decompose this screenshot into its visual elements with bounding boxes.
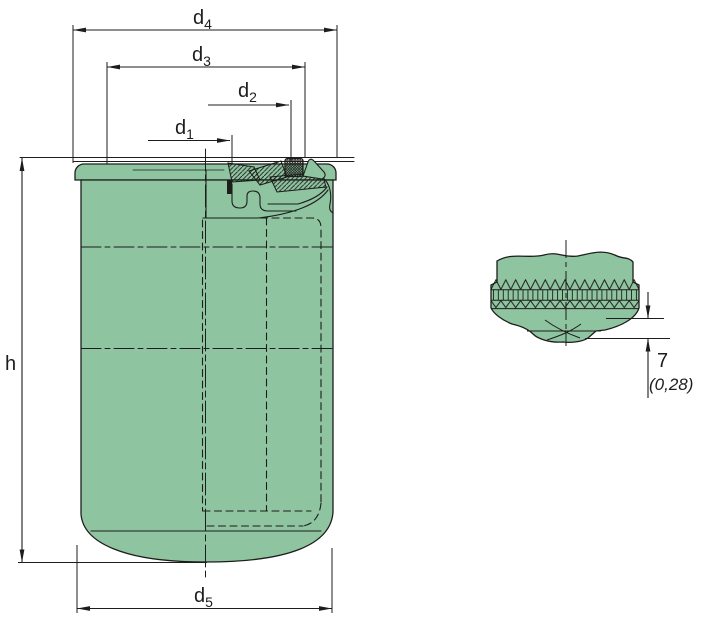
dimension-label-d4: d4 [193, 7, 212, 32]
detail-dimension-secondary: (0,28) [649, 375, 693, 394]
knurl-band [491, 279, 639, 309]
dimension-label-d1: d1 [175, 117, 194, 142]
dimension-label-d5: d5 [194, 585, 213, 610]
gasket-lip [303, 159, 325, 179]
detail-view: 7 (0,28) [491, 240, 693, 398]
seal-retainer-edge [227, 180, 232, 194]
dimension-label-d3: d3 [192, 44, 211, 69]
sealing-gasket [285, 159, 303, 177]
drawing-canvas: d4 d3 d2 d1 h d5 [0, 0, 713, 619]
detail-dimension-value: 7 [657, 350, 668, 372]
dimension-d4: d4 [73, 7, 337, 163]
technical-drawing: d4 d3 d2 d1 h d5 [0, 0, 713, 619]
dimension-label-d2: d2 [238, 80, 257, 105]
dimension-label-h: h [5, 353, 16, 375]
filter-body [81, 180, 333, 562]
main-view [20, 149, 354, 578]
dimension-d2: d2 [208, 80, 291, 162]
dimension-d3: d3 [107, 44, 305, 164]
